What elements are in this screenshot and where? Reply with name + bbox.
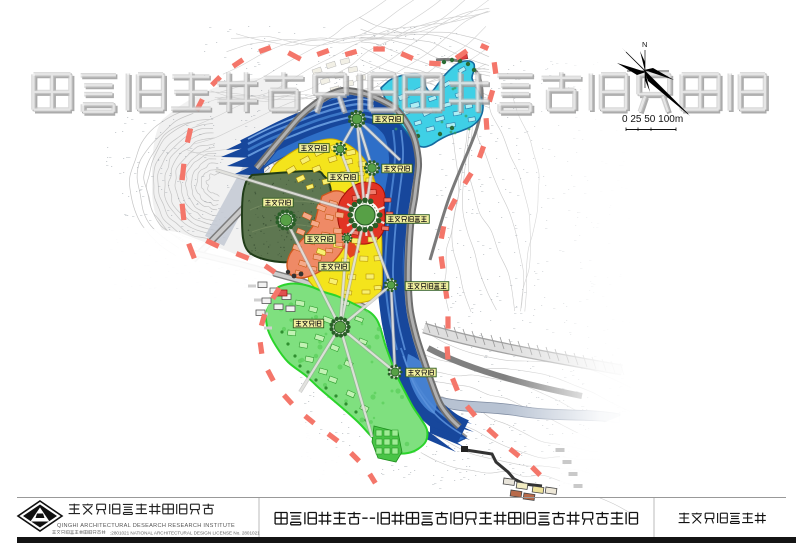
- svg-text::2801021 NATIONAL ARCHITE: :2801021 NATIONAL ARCHITECTURAL DESIGN L…: [110, 531, 260, 536]
- svg-text:QINGHI ARCHITECTURAL DESEARC: QINGHI ARCHITECTURAL DESEARCH RESEARCH I…: [57, 523, 235, 529]
- svg-text:N: N: [642, 40, 647, 49]
- svg-text:0 25 50 100m: 0 25 50 100m: [622, 114, 683, 125]
